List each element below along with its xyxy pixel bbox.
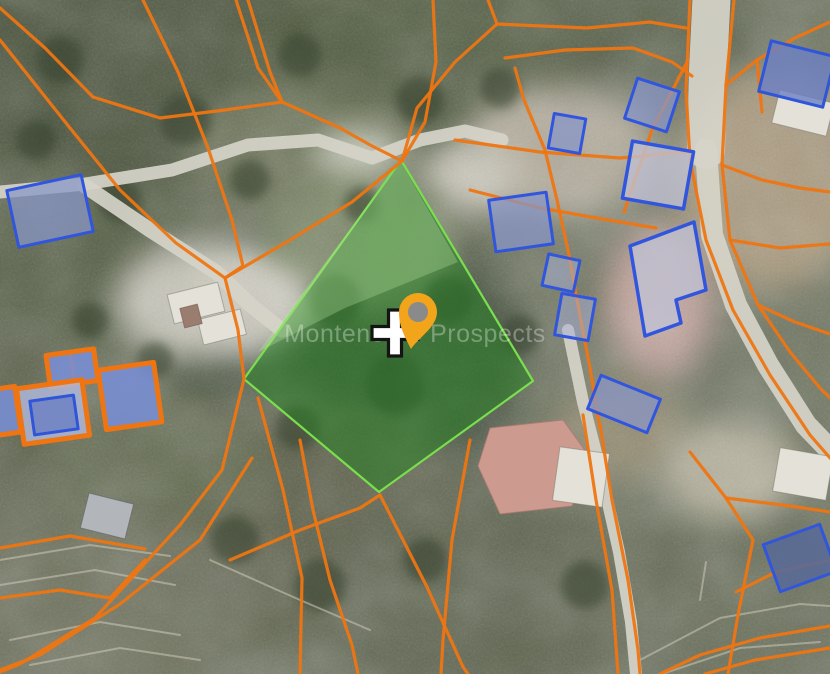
map-canvas[interactable]: Montenegro Prospects: [0, 0, 830, 674]
map-viewport[interactable]: Montenegro Prospects: [0, 0, 830, 674]
